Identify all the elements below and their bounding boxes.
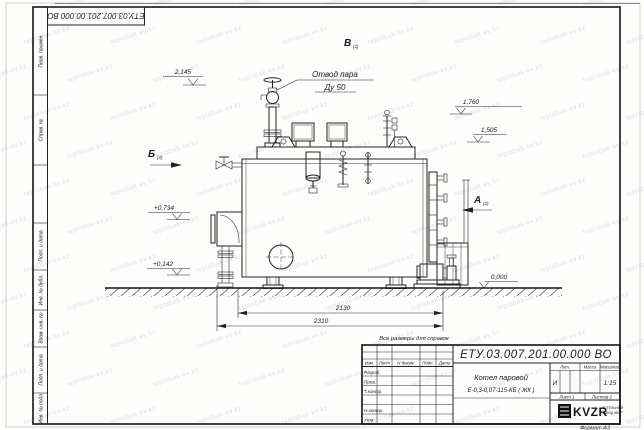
side-cell-label: Перв. примен. [39,34,45,67]
boiler-drawing: Отвод пара Ду 50 [105,70,562,297]
logo-caption-2: ЗАВОД КВЗР [602,411,623,415]
row-utv: Утв. [364,418,374,423]
top-platform [257,137,415,159]
level-gauge-pole [383,110,397,147]
reference-note: Все размеры для справок [379,336,449,342]
product-name: Котел паровой [474,373,529,382]
side-cell-label: Подп. и дата [39,354,45,386]
row-tkontr: Т.контр. [364,389,383,394]
sheets-cell: Листов 2 [591,395,613,400]
callout-text-line1: Отвод пара [312,70,358,79]
water-column [364,152,372,184]
view-marker-a: А (2) [462,195,492,213]
sheet-cell: Лист 1 [558,395,575,400]
dimensions-and-marks: 2,145 1,760 1,505 +0,734 [147,38,522,331]
right-column-fittings [429,172,470,285]
side-cell-label: Справ. № [39,118,45,141]
level-value: 1,505 [481,127,498,134]
lit-value: И [553,380,558,387]
level-mark-0734: +0,734 [148,205,190,220]
level-value: +0,142 [153,261,173,268]
view-sublabel: (2) [157,155,163,160]
side-cell-label: Подп. и дата [39,230,45,262]
level-mark-1760: 1,760 [450,99,522,114]
kvzr-logo: KVZR КОТЕЛЬНЫЙ ЗАВОД КВЗР [558,404,624,419]
blowdown-elbow [211,212,242,287]
level-value: 2,145 [174,69,192,76]
steam-outlet-valve [261,78,281,147]
lit-header: Лит. [559,365,570,370]
side-cell-label: Взам. инв. № [39,312,45,344]
col-podp: Подп. [422,361,433,366]
steam-outlet-callout: Отвод пара Ду 50 [277,70,374,92]
dim-2310: 2310 [217,318,443,328]
spring-safety-valve [338,151,348,187]
drawing-sheet: teplobak-kv.kzteplobak-kv.kzteplobak-kv.… [0,0,644,430]
title-block: Все размеры для справок [362,336,624,430]
row-razrab: Разраб. [364,370,381,375]
boiler-body [242,159,427,277]
side-cell-label: Инв. № подл. [39,392,45,423]
mass-header: Масса [584,365,597,370]
doc-number-rotated: ЕТУ.03.007.201.00.000 ВО [47,11,144,20]
row-prov: Пров. [364,380,376,385]
col-list: Лист [378,361,390,366]
scale-value: 1:15 [604,380,617,387]
level-mark-1505: 1,505 [467,127,507,142]
col-docum: N докум. [397,361,414,366]
view-label: А [473,195,481,206]
title-doc-number: ЕТУ.03.007.201.00.000 ВО [460,349,612,361]
burner-port [266,242,296,272]
view-sublabel: (2) [483,201,489,206]
view-marker-v: В (2) [344,38,359,49]
view-label: Б [148,149,155,160]
col-data: Дата [438,361,451,366]
engineering-drawing: Перв. примен. Справ. № Подп. и дата Инв.… [0,0,644,430]
separator-vessel [306,152,320,193]
level-value: 1,760 [463,99,480,106]
right-flanged-stubs [437,174,447,246]
level-value: +0,734 [154,205,174,212]
format-label: Формат А3 [580,426,611,430]
view-marker-b: Б (2) [148,149,182,168]
level-mark-0000: 0,000 [474,274,518,288]
dim-value: 2130 [335,305,351,312]
top-doc-number-box: ЕТУ.03.007.201.00.000 ВО [47,7,144,25]
side-cell-label: Инв. № дубл. [39,275,45,306]
row-nkontr: Н.контр. [364,408,383,413]
view-sublabel: (2) [353,44,359,49]
product-model: Е-0,3-0,07-115-КБ ( ЖК ) [467,388,534,394]
level-mark-2145: 2,145 [163,69,206,85]
dim-value: 2310 [313,318,329,325]
logo-caption-1: КОТЕЛЬНЫЙ [602,406,624,410]
scale-header: Масштаб [600,365,621,370]
level-mark-0142: +0,142 [147,261,190,275]
view-label: В [344,38,351,49]
support-legs [263,277,406,289]
level-value: 0,000 [491,274,508,281]
top-hatch-boxes [292,123,347,147]
callout-text-line2: Ду 50 [324,83,346,92]
left-angle-valve [216,157,242,169]
ground-line [105,288,562,297]
col-izm: Изм. [365,361,374,366]
